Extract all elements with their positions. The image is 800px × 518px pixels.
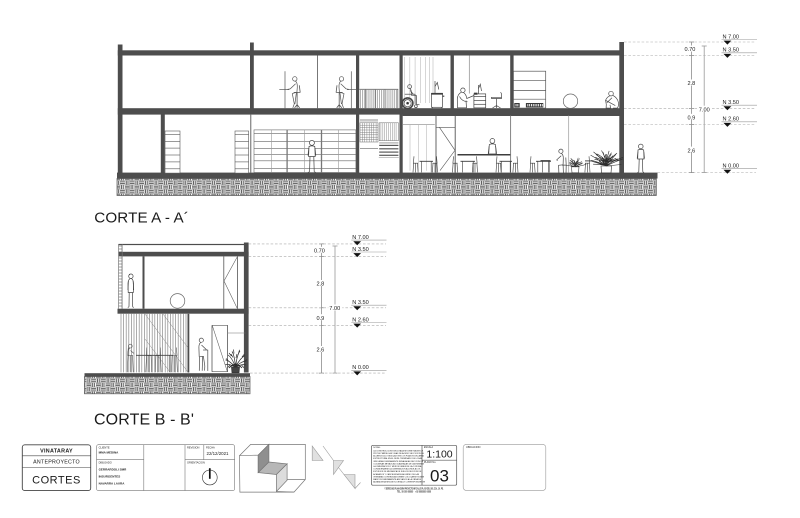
- svg-text:PROYECTARSE LAS VIGAS DE ACERO: PROYECTARSE LAS VIGAS DE ACERO SECCION W…: [373, 452, 424, 455]
- svg-text:INDICADAS DEBIDAMENTE SENALADA: INDICADAS DEBIDAMENTE SENALADAS SECCION …: [373, 460, 424, 463]
- svg-text:2.8: 2.8: [688, 81, 696, 87]
- svg-text:7.00: 7.00: [699, 107, 710, 113]
- svg-text:NAVARRA LAURA: NAVARRA LAURA: [99, 481, 126, 485]
- svg-text:REVISION: REVISION: [187, 445, 200, 449]
- svg-text:LA CIMENTACION Y MUROS DEBEN D: LA CIMENTACION Y MUROS DEBEN DE LA CORON…: [373, 465, 422, 468]
- svg-text:PLANO No.: PLANO No.: [424, 461, 436, 464]
- svg-text:0.70: 0.70: [685, 47, 696, 53]
- svg-text:CORTE B - B': CORTE B - B': [94, 412, 194, 429]
- svg-text:0.70: 0.70: [314, 249, 325, 255]
- svg-text:2.6: 2.6: [688, 148, 696, 154]
- svg-text:ORIENTACION: ORIENTACION: [187, 461, 205, 465]
- svg-text:1:100: 1:100: [426, 449, 452, 461]
- svg-text:22/12/2021: 22/12/2021: [207, 451, 230, 456]
- svg-text:ANTEPROYECTO: ANTEPROYECTO: [33, 460, 80, 466]
- svg-text:DIBUJADO: DIBUJADO: [99, 461, 112, 465]
- svg-text:LA CONSTRUCCION EJECUTADA SE D: LA CONSTRUCCION EJECUTADA SE DEBE HACER …: [373, 449, 424, 452]
- svg-text:2.6: 2.6: [317, 348, 325, 354]
- svg-text:CONSIDERARSE LA CIMENTACION AC: CONSIDERARSE LA CIMENTACION ACORDE A LOS: [373, 468, 421, 471]
- svg-text:ESTUDIOS DE MECANICA DE SUELOS: ESTUDIOS DE MECANICA DE SUELOS SECCION D…: [373, 470, 422, 473]
- svg-text:7.00: 7.00: [329, 306, 340, 312]
- svg-text:CORTE A - A´: CORTE A - A´: [94, 209, 189, 226]
- svg-text:0.9: 0.9: [317, 316, 325, 322]
- svg-text:ALBANILERIA SEGUN EL DETALLE C: ALBANILERIA SEGUN EL DETALLE CORRESPONDI…: [373, 481, 425, 484]
- svg-text:CLIENTE: CLIENTE: [99, 445, 110, 449]
- svg-text:ACABADOS Y CANCELERIA DE ALUMI: ACABADOS Y CANCELERIA DE ALUMINIO DE LAS: [373, 473, 420, 476]
- svg-text:VINATARAY: VINATARAY: [40, 449, 73, 455]
- svg-text:TEL. 55 555 55555 +52 55555: TEL. 55 555 55555 +52 5555555 5555: [397, 490, 431, 493]
- svg-text:ACUERDO A LO INDICADO EN LOS P: ACUERDO A LO INDICADO EN LOS PLANOS DEL …: [373, 455, 424, 458]
- svg-text:03: 03: [430, 467, 449, 486]
- svg-text:0.9: 0.9: [688, 116, 696, 122]
- svg-text:GERRARDOLI SMR: GERRARDOLI SMR: [99, 467, 128, 471]
- svg-text:2.8: 2.8: [317, 282, 325, 288]
- svg-text:MARCOS DEBIDAMENTE ANCLADOS A: MARCOS DEBIDAMENTE ANCLADOS A LA OBRA DE: [373, 478, 421, 481]
- svg-text:COLUMNAS METALICAS CUADRADAS D: COLUMNAS METALICAS CUADRADAS DE LAS MISM…: [373, 462, 424, 465]
- svg-text:VENTANAS CORREDIZAS DEBEN COLO: VENTANAS CORREDIZAS DEBEN COLOCARSE SOBR…: [373, 475, 424, 478]
- svg-text:MMA MEDINA: MMA MEDINA: [99, 451, 120, 455]
- svg-text:NOTAS:: NOTAS:: [373, 446, 381, 449]
- svg-text:UBICACION: UBICACION: [466, 445, 481, 449]
- svg-text:INSURGENTES: INSURGENTES: [99, 474, 121, 478]
- svg-text:ESTRUCTURAL EN EL NIVEL TERMIN: ESTRUCTURAL EN EL NIVEL TERMINADO DE LOS…: [373, 457, 422, 460]
- svg-text:FECHA: FECHA: [206, 445, 215, 449]
- svg-text:CORTES: CORTES: [32, 475, 81, 487]
